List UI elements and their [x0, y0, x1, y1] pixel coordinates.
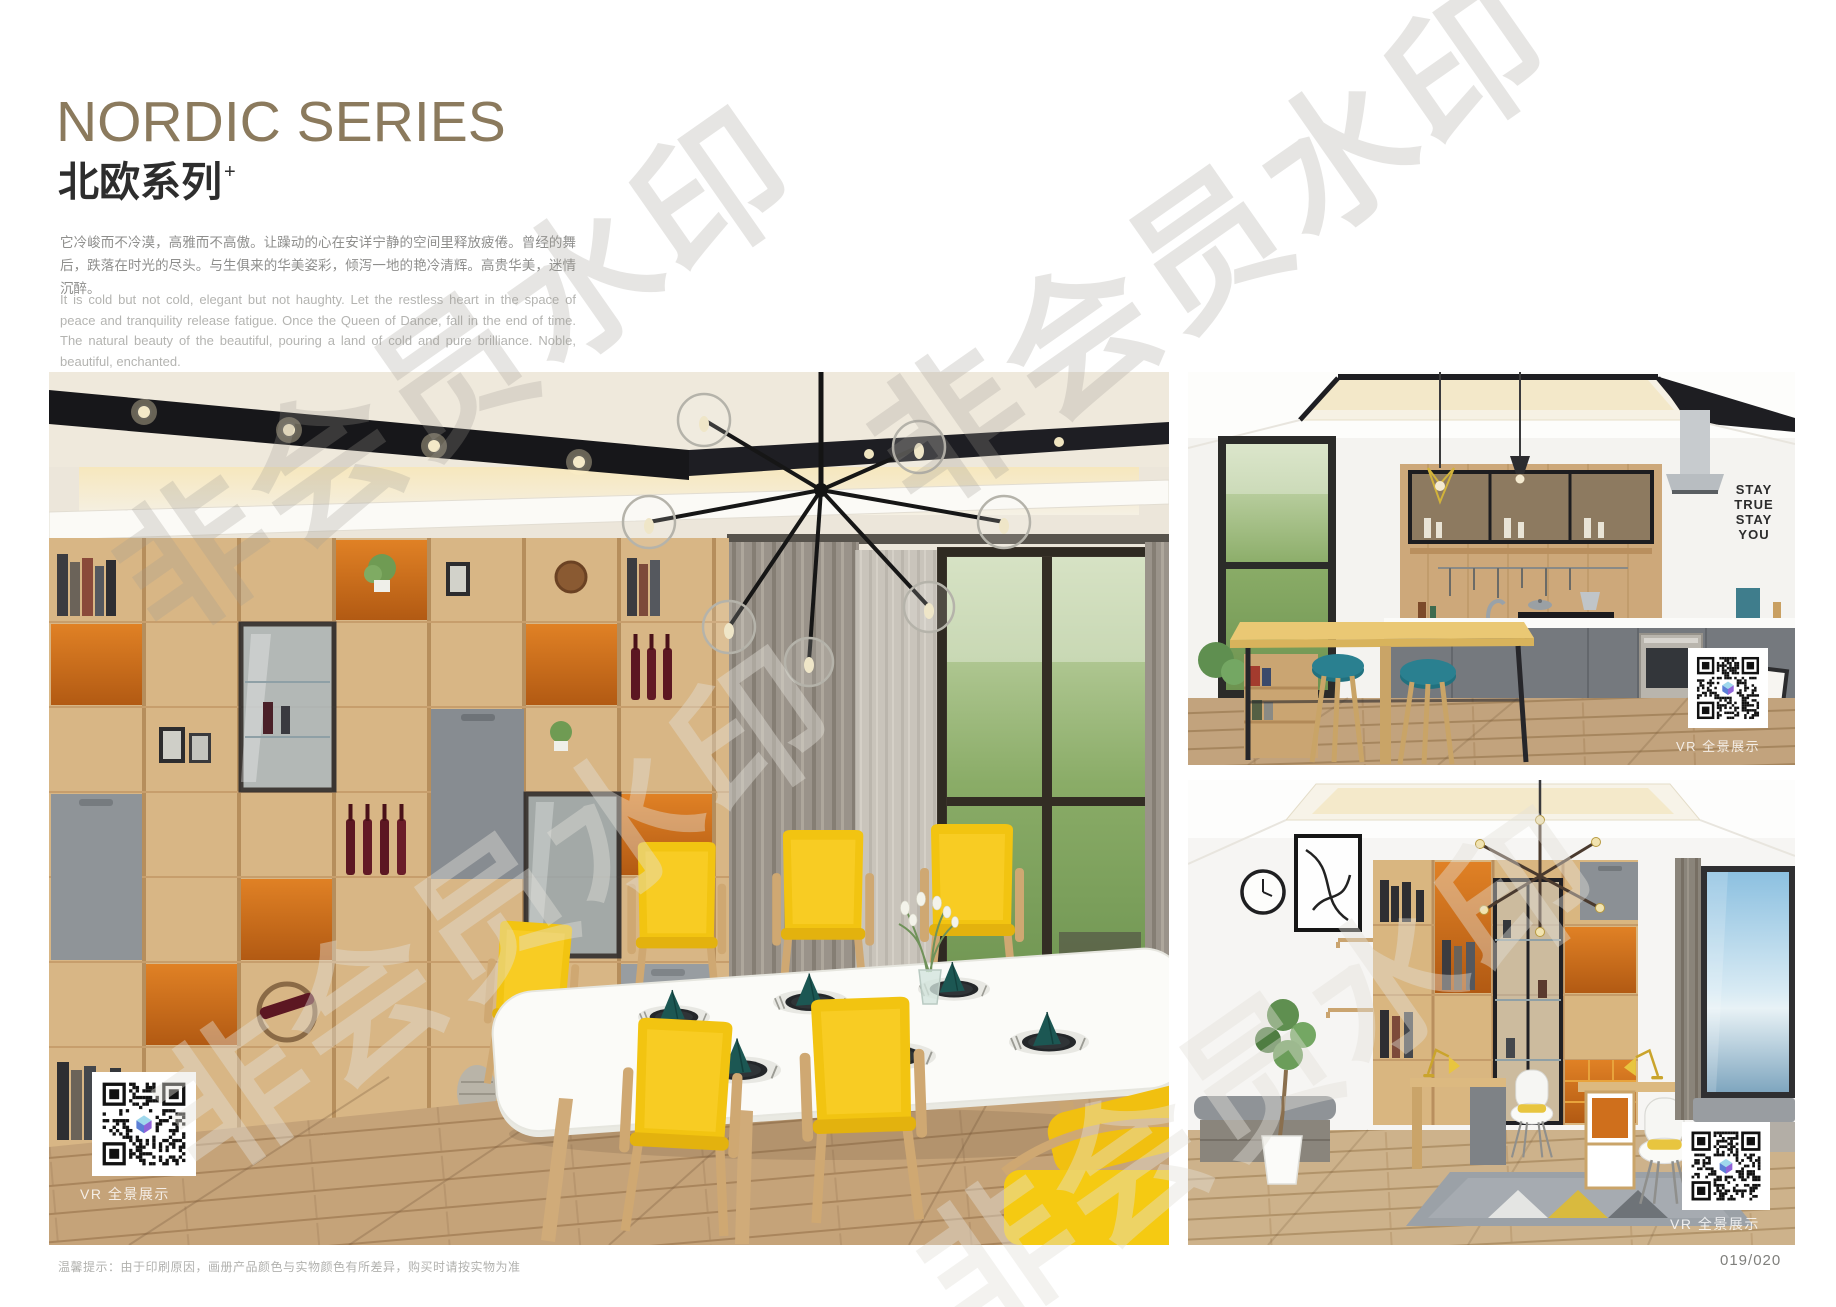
wall-decal-line: STAY [1736, 482, 1773, 497]
photo-dining-room [49, 372, 1169, 1245]
wall-decal-line: STAY [1736, 512, 1773, 527]
wall-decal-line: TRUE [1734, 497, 1773, 512]
qr-code-kitchen-vr [1688, 648, 1768, 728]
vr-label-dining: VR 全景展示 [80, 1184, 170, 1204]
intro-paragraph-en: It is cold but not cold, elegant but not… [60, 290, 576, 372]
qr-code-dining-vr [92, 1072, 196, 1176]
subtitle-superscript: + [224, 161, 236, 183]
abstract-art-frame [1296, 836, 1360, 930]
wall-clock [1242, 871, 1284, 913]
dining-room-illustration [49, 372, 1169, 1245]
subtitle-text: 北欧系列 [58, 159, 222, 205]
qr-code-study-vr [1682, 1122, 1770, 1210]
vr-label-kitchen: VR 全景展示 [1676, 736, 1760, 755]
page-number: 019/020 [1720, 1252, 1781, 1269]
study-window [1675, 858, 1795, 1152]
page-subtitle: 北欧系列+ [58, 162, 236, 203]
vr-label-study: VR 全景展示 [1670, 1214, 1760, 1234]
page-title: NORDIC SERIES [56, 94, 506, 151]
stay-true-wall-decal: STAY TRUE STAY YOU [1734, 482, 1773, 542]
wall-decal-line: YOU [1738, 527, 1769, 542]
bar-shelf-unit [1244, 654, 1318, 758]
catalog-page: NORDIC SERIES 北欧系列+ 它冷峻而不冷漠，高雅而不高傲。让躁动的心… [0, 0, 1836, 1307]
footer-disclaimer: 温馨提示：由于印刷原因，画册产品颜色与实物颜色有所差异，购买时请按实物为准 [58, 1258, 521, 1275]
